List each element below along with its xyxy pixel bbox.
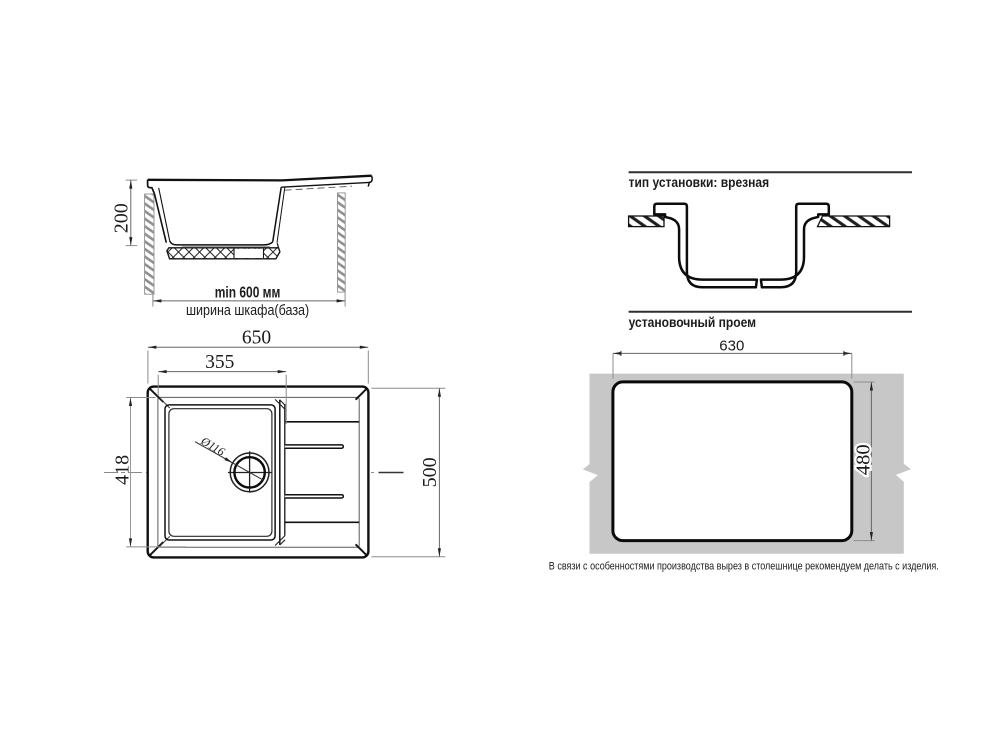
- svg-text:500: 500: [419, 457, 441, 487]
- svg-text:ширина шкафа(база): ширина шкафа(база): [186, 303, 309, 319]
- svg-text:В связи с особенностями произв: В связи с особенностями производства выр…: [549, 561, 939, 573]
- svg-text:480: 480: [852, 444, 874, 475]
- svg-text:установочный проем: установочный проем: [629, 315, 757, 330]
- svg-text:650: 650: [242, 328, 271, 349]
- svg-text:тип установки: врезная: тип установки: врезная: [629, 175, 770, 190]
- svg-text:200: 200: [111, 203, 133, 233]
- svg-text:418: 418: [111, 455, 133, 485]
- svg-text:355: 355: [205, 352, 234, 373]
- svg-text:630: 630: [719, 337, 744, 354]
- svg-text:min 600 мм: min 600 мм: [215, 285, 281, 302]
